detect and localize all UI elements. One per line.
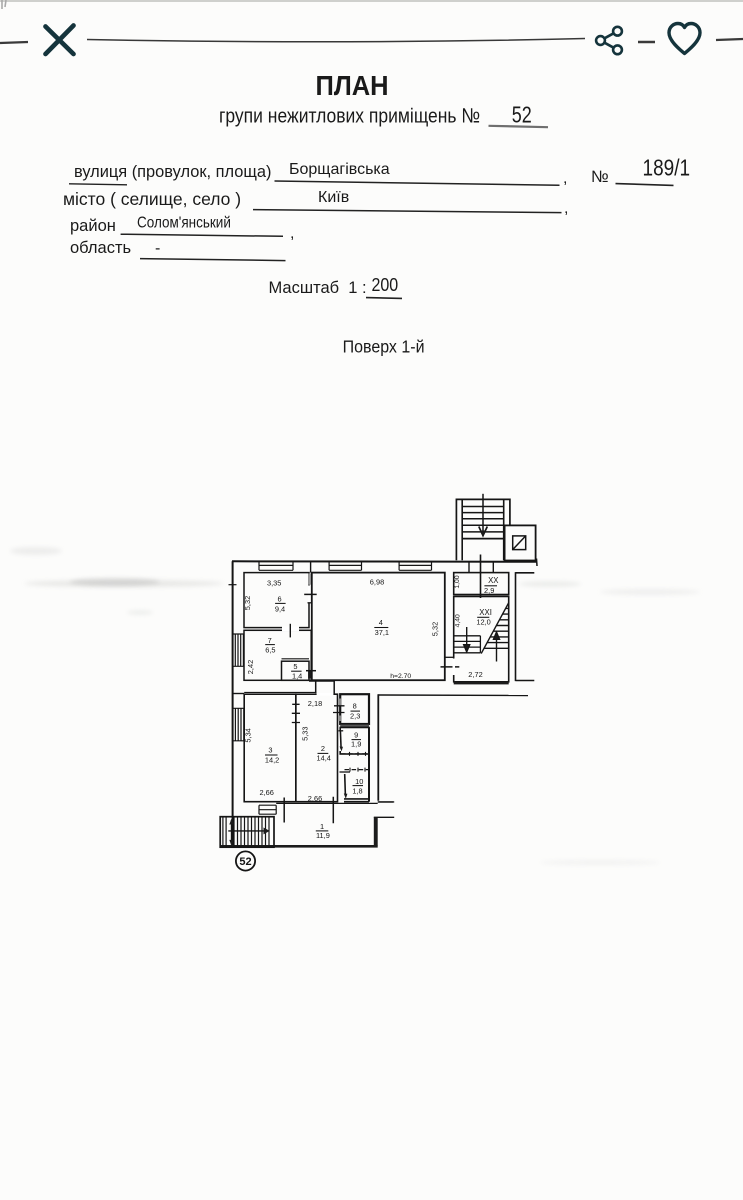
svg-text:3,35: 3,35 xyxy=(267,578,281,587)
svg-text:11,9: 11,9 xyxy=(316,831,330,840)
svg-text:1,00: 1,00 xyxy=(454,575,461,588)
svg-text:14,4: 14,4 xyxy=(317,754,331,763)
svg-text:6,5: 6,5 xyxy=(265,645,275,654)
svg-text:2,66: 2,66 xyxy=(308,794,322,803)
svg-text:2: 2 xyxy=(321,744,325,753)
svg-text:4,40: 4,40 xyxy=(454,614,461,627)
svg-text:10: 10 xyxy=(355,777,363,786)
svg-text:5: 5 xyxy=(293,662,297,671)
svg-text:2,18: 2,18 xyxy=(308,699,322,708)
svg-text:3: 3 xyxy=(268,745,272,754)
svg-text:7: 7 xyxy=(268,636,272,645)
svg-text:2,66: 2,66 xyxy=(260,788,274,797)
svg-text:12,0: 12,0 xyxy=(476,617,490,626)
svg-text:5,32: 5,32 xyxy=(430,622,439,636)
svg-text:52: 52 xyxy=(239,856,251,868)
svg-text:37,1: 37,1 xyxy=(375,628,389,637)
svg-text:2,72: 2,72 xyxy=(468,670,482,679)
svg-text:6: 6 xyxy=(277,595,281,604)
svg-text:4: 4 xyxy=(379,618,383,627)
svg-text:2,9: 2,9 xyxy=(484,586,494,595)
svg-text:5,33: 5,33 xyxy=(301,727,310,741)
svg-text:2,42: 2,42 xyxy=(246,660,255,674)
svg-text:14,2: 14,2 xyxy=(265,755,279,764)
svg-text:6,98: 6,98 xyxy=(370,577,384,586)
svg-text:9,4: 9,4 xyxy=(275,605,285,614)
svg-text:5,32: 5,32 xyxy=(243,596,252,610)
svg-text:h=2.70: h=2.70 xyxy=(390,673,411,680)
svg-text:1,9: 1,9 xyxy=(351,739,361,748)
svg-text:1,8: 1,8 xyxy=(352,786,362,795)
svg-text:XXI: XXI xyxy=(479,608,492,617)
svg-text:1,4: 1,4 xyxy=(292,671,302,680)
svg-text:8: 8 xyxy=(353,702,357,711)
svg-text:XX: XX xyxy=(488,576,499,585)
svg-text:2,3: 2,3 xyxy=(350,711,360,720)
svg-text:5,34: 5,34 xyxy=(243,728,252,742)
svg-text:1: 1 xyxy=(320,822,324,831)
svg-text:9: 9 xyxy=(354,731,358,740)
